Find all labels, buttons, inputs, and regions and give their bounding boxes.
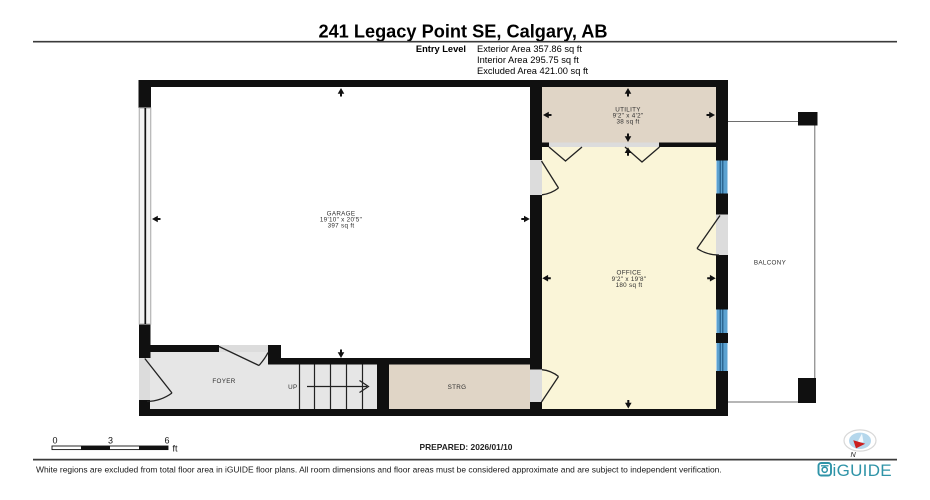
svg-text:Interior Area 295.75 sq ft: Interior Area 295.75 sq ft <box>477 55 579 65</box>
svg-text:241 Legacy Point SE, Calgary,: 241 Legacy Point SE, Calgary, AB <box>318 22 607 42</box>
svg-text:White regions are excluded fro: White regions are excluded from total fl… <box>36 465 722 475</box>
svg-text:Excluded Area 421.00 sq ft: Excluded Area 421.00 sq ft <box>477 66 589 76</box>
svg-text:iGUIDE: iGUIDE <box>833 461 892 480</box>
svg-text:FOYER: FOYER <box>212 378 235 385</box>
svg-text:38 sq ft: 38 sq ft <box>616 119 639 126</box>
svg-text:STRG: STRG <box>448 384 467 391</box>
svg-text:ft: ft <box>173 444 179 454</box>
svg-text:Entry Level: Entry Level <box>416 44 466 54</box>
svg-text:PREPARED: 2026/01/10: PREPARED: 2026/01/10 <box>420 442 513 452</box>
svg-text:Exterior Area 357.86 sq ft: Exterior Area 357.86 sq ft <box>477 44 582 54</box>
svg-text:BALCONY: BALCONY <box>754 260 787 267</box>
svg-text:N: N <box>851 450 857 459</box>
svg-text:397 sq ft: 397 sq ft <box>328 223 355 230</box>
svg-text:3: 3 <box>108 436 113 446</box>
svg-text:180 sq ft: 180 sq ft <box>616 282 643 289</box>
svg-text:6: 6 <box>164 436 169 446</box>
svg-text:UP: UP <box>288 384 297 391</box>
svg-text:0: 0 <box>52 436 57 446</box>
